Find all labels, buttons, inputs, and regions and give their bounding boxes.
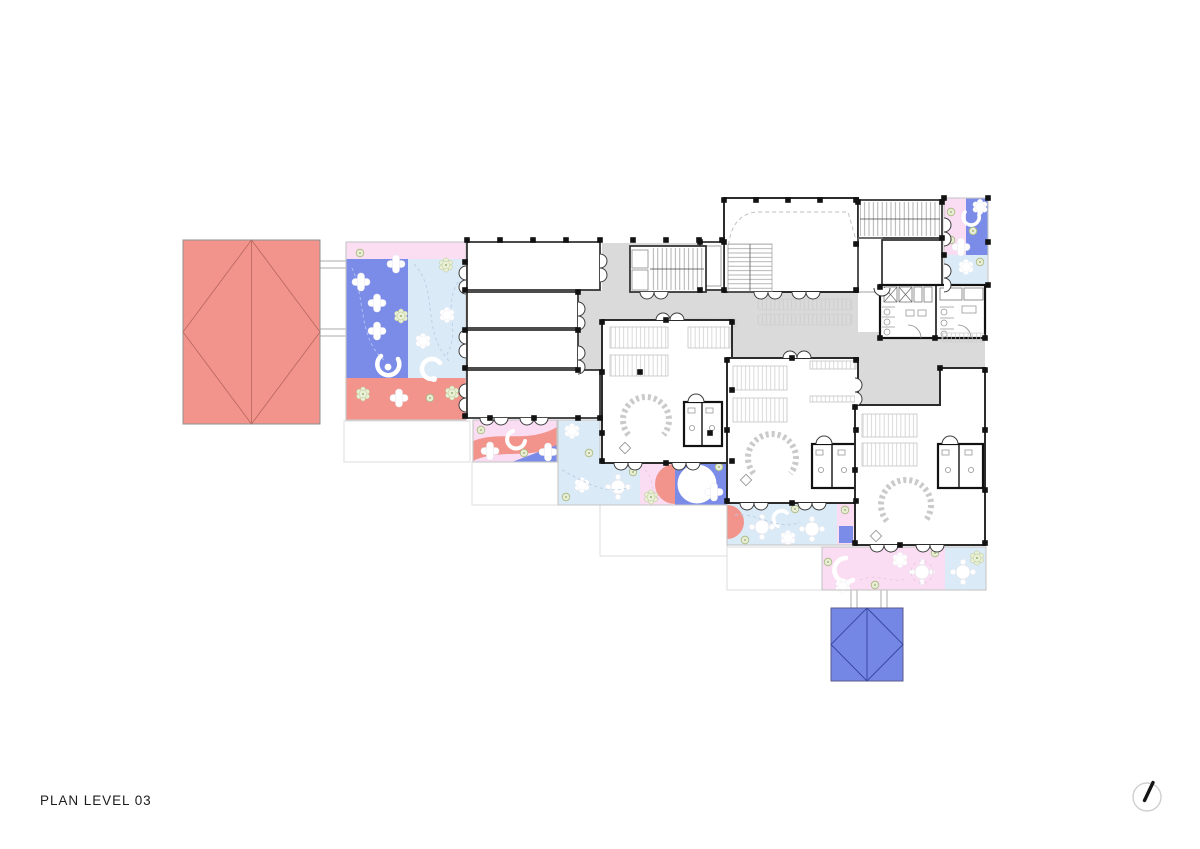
terrace-a [473,420,557,462]
classroom-2 [727,358,858,503]
terrace-northwest [346,242,466,420]
classroom-1 [602,320,732,463]
hall [724,198,858,292]
terrace-d [822,547,986,594]
stair-northeast [858,200,942,292]
roof-south [831,608,903,681]
roof-west [183,240,320,424]
sanitary-block [880,285,985,338]
plan-sheet: PLAN LEVEL 03 [0,0,1200,849]
stair-core [630,246,706,292]
plan-title: PLAN LEVEL 03 [40,793,152,808]
floor-plan-canvas [0,0,1200,849]
north-arrow-icon [1133,783,1161,812]
